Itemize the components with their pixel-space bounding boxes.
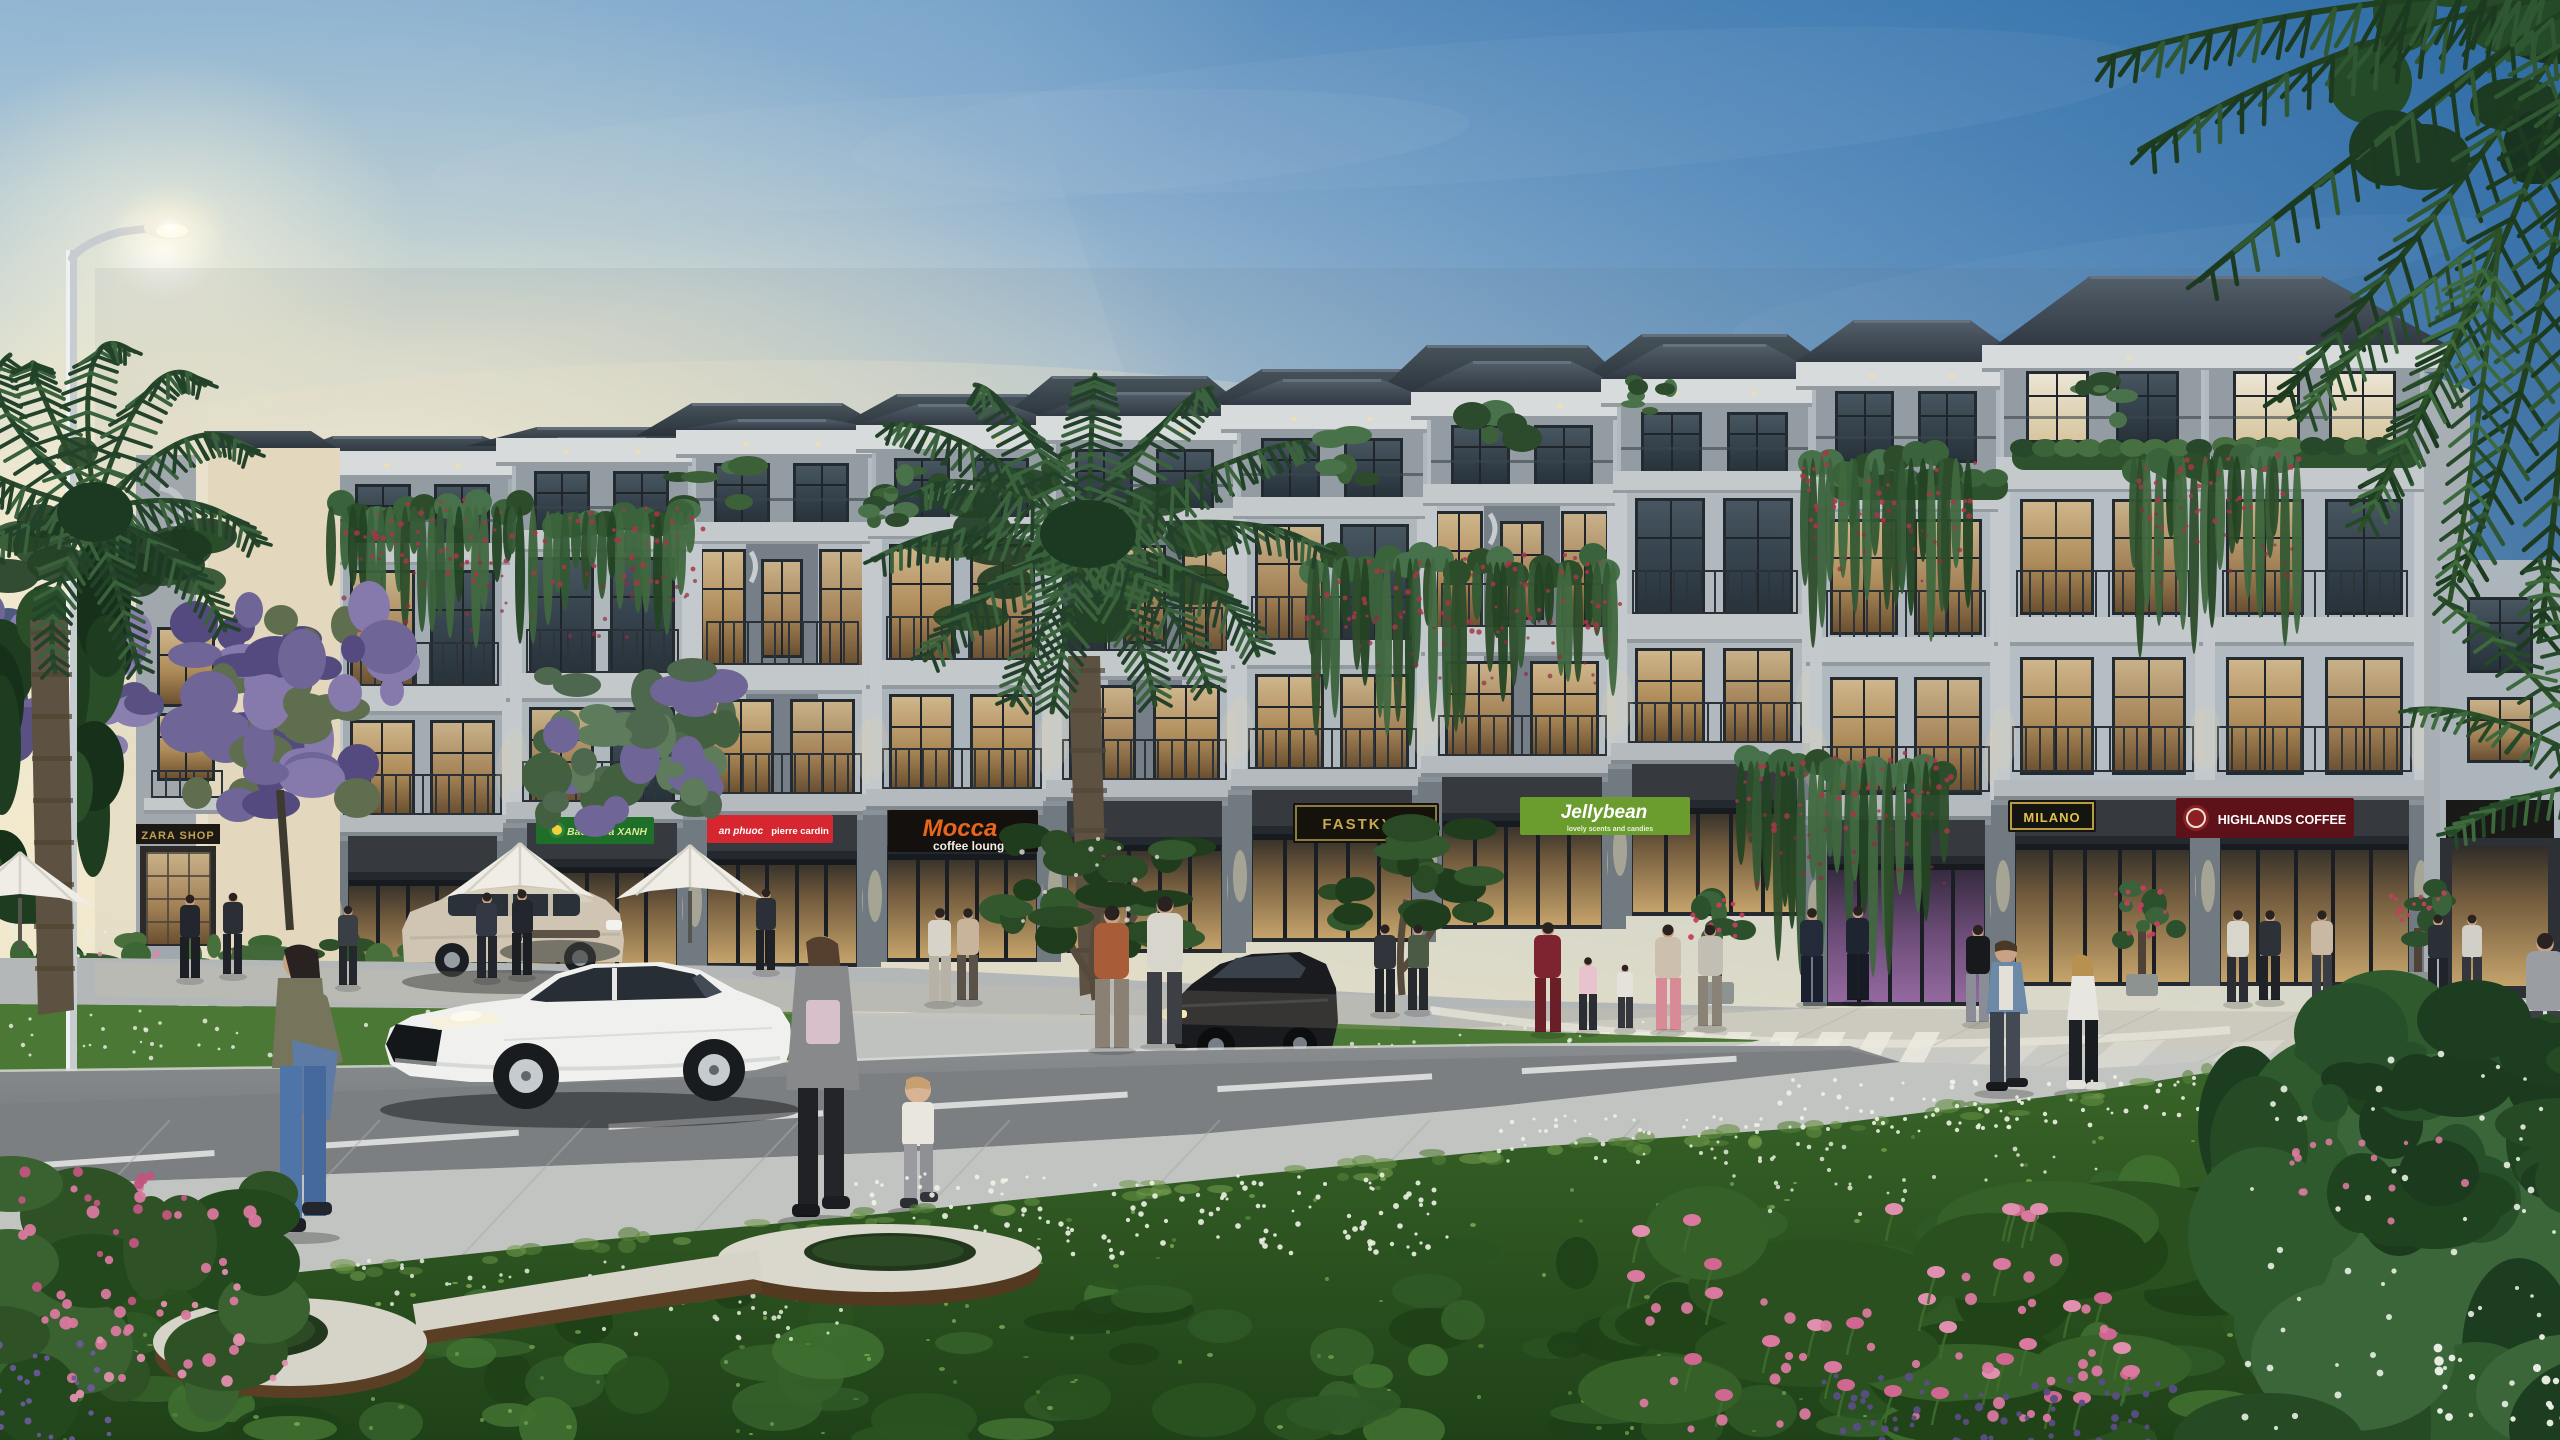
- svg-text:an phuoc: an phuoc: [719, 826, 764, 837]
- svg-text:Jellybean: Jellybean: [1561, 802, 1648, 823]
- svg-text:MILANO: MILANO: [2023, 810, 2080, 825]
- svg-text:HIGHLANDS COFFEE: HIGHLANDS COFFEE: [2218, 813, 2346, 827]
- svg-text:lovely scents and candies: lovely scents and candies: [1567, 826, 1653, 833]
- svg-text:Mocca: Mocca: [923, 815, 998, 842]
- svg-text:pierre cardin: pierre cardin: [771, 826, 829, 837]
- svg-text:coffee lounge: coffee lounge: [933, 839, 1011, 853]
